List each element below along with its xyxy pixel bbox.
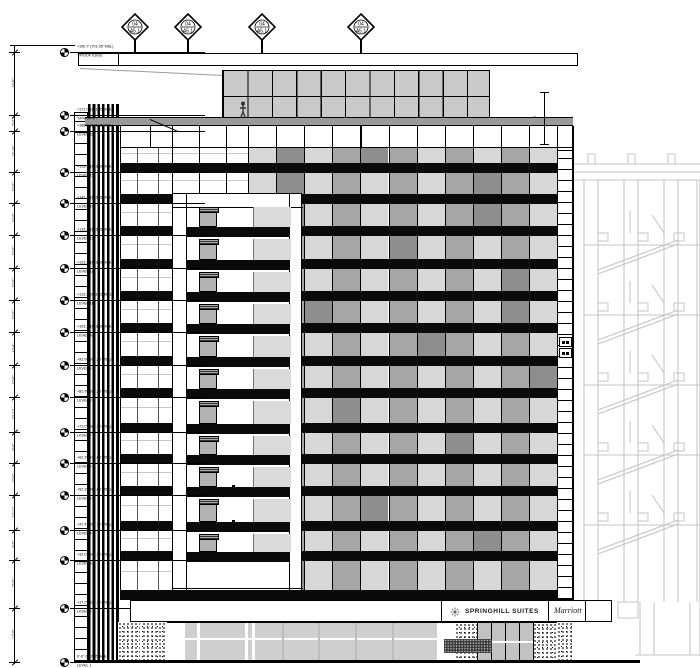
level-datum-icon [59, 555, 70, 566]
level-datum-icon [59, 603, 70, 614]
masonry-block [533, 623, 557, 663]
level-elevation-label: +72.0' (582.35' MSL) [77, 425, 111, 429]
level-name-label: T/ROOF EDGE [77, 54, 103, 58]
level-leader-line [70, 115, 205, 116]
svg-text:A5.1: A5.1 [257, 29, 268, 35]
vent-louver [559, 348, 572, 358]
level-name-label: T/PARAPET [77, 117, 97, 121]
level-elevation-label: +62.3' (572.65' MSL) [77, 456, 111, 460]
level-datum-icon [59, 525, 70, 536]
level-name-label: LEVEL 10 [77, 334, 94, 338]
dimension-segment-label: 10'-0" [12, 371, 15, 388]
level-name-label: LEVEL 12 [77, 270, 94, 274]
roof-keynote-marker: 04A5.1 [121, 13, 149, 41]
level-name-label: LEVEL 16 [77, 133, 94, 137]
masonry-corner [557, 622, 573, 660]
parapet-dim-line [544, 92, 545, 145]
sign-divider [441, 601, 442, 621]
parapet-dim-label: 9' [534, 116, 537, 119]
storefront-glass [185, 622, 437, 662]
svg-text:A5.1: A5.1 [130, 29, 141, 35]
level-leader-line [70, 268, 205, 269]
level-leader-line [70, 463, 205, 464]
level-name-label: LEVEL 11 [77, 302, 93, 306]
level-elevation-label: +32.0' (542.35' MSL) [77, 553, 111, 557]
annotation-layer: +190.7' (701.05' MSL)T/ROOF EDGE+171.0' … [0, 0, 700, 668]
vent-damper [566, 341, 569, 344]
roof-keynote-marker: 04A5.1 [347, 13, 375, 41]
masonry-joint [140, 622, 142, 662]
svg-text:A5.1: A5.1 [356, 29, 367, 35]
level-datum-icon [59, 198, 70, 209]
dimension-segment-label: 9'-5" [12, 535, 15, 552]
level-elevation-label: +153.2' (663.55' MSL) [77, 165, 113, 169]
level-name-label: LEVEL 8 [77, 399, 92, 403]
storefront-mullion [197, 623, 200, 663]
svg-text:04: 04 [185, 22, 191, 28]
level-datum-icon [59, 230, 70, 241]
storefront [74, 622, 573, 662]
svg-text:04: 04 [259, 22, 265, 28]
storefront-mullion [282, 623, 284, 663]
sign-hotel-name: SPRINGHILL SUITES [465, 608, 539, 615]
level-datum-icon [59, 490, 70, 501]
dimension-segment-label: 10'-11" [12, 503, 15, 520]
dimension-segment-label: 10'-0" [12, 209, 15, 226]
level-datum-icon [59, 263, 70, 274]
dimension-segment-label: 9'-8" [12, 438, 15, 455]
white-pier [167, 622, 185, 663]
masonry-pier [118, 622, 167, 662]
svg-text:A5.1: A5.1 [183, 29, 194, 35]
level-name-label: LEVEL 4 [77, 532, 92, 536]
level-elevation-label: +92.9' (603.25' MSL) [77, 358, 111, 362]
level-datum-icon [59, 657, 70, 668]
storefront-mullion [355, 623, 357, 663]
level-datum-icon [59, 327, 70, 338]
sign-divider [548, 601, 549, 621]
level-elevation-label: +52.3' (562.65' MSL) [77, 488, 111, 492]
level-leader-line [70, 131, 205, 132]
level-name-label: LEVEL 5 [77, 497, 92, 501]
svg-text:04: 04 [132, 22, 138, 28]
dimension-segment-label: 10'-4" [12, 339, 15, 356]
ground-line [74, 660, 640, 663]
level-datum-icon [59, 167, 70, 178]
level-datum-icon [59, 47, 70, 58]
sign-divider [585, 601, 586, 621]
level-name-label: LEVEL 15 [77, 174, 94, 178]
level-leader-line [70, 397, 205, 398]
level-datum-icon [59, 392, 70, 403]
level-leader-line [70, 365, 205, 366]
level-elevation-label: +41.4' (551.75' MSL) [77, 523, 111, 527]
dimension-segment-label: 10'-0" [12, 469, 15, 486]
dimension-segment-label: 17'-0" [12, 625, 15, 642]
level-elevation-label: +166.0' (676.35' MSL) [77, 124, 113, 128]
storefront-mullion [252, 623, 255, 663]
level-leader-line [70, 530, 205, 531]
level-name-label: LEVEL 3 [77, 562, 92, 566]
entrance-planting [444, 639, 492, 653]
level-elevation-label: +17.0' (527.35' MSL) [77, 601, 111, 605]
level-elevation-label: +190.7' (701.05' MSL) [77, 45, 113, 49]
level-datum-icon [59, 427, 70, 438]
dimension-segment-label: 19'-8" [12, 74, 15, 91]
level-leader-line [70, 495, 205, 496]
level-name-label: LEVEL 2 [77, 610, 92, 614]
level-leader-line [70, 52, 205, 53]
transom-bar [185, 638, 437, 640]
vent-damper [566, 352, 569, 355]
level-name-label: LEVEL 1 [77, 664, 92, 668]
level-name-label: LEVEL 9 [77, 367, 92, 371]
dimension-segment-label: 15'-0" [12, 574, 15, 591]
door-mullion [533, 623, 534, 663]
level-leader-line [70, 432, 205, 433]
dimension-tick [540, 144, 549, 145]
parapet-leader [150, 119, 178, 132]
level-datum-icon [59, 110, 70, 121]
level-elevation-label: +82.9' (593.25' MSL) [77, 390, 111, 394]
svg-text:04: 04 [358, 22, 364, 28]
storefront-mullion [392, 623, 394, 663]
level-elevation-label: +171.0' (681.35' MSL) [77, 108, 113, 112]
vent-damper [562, 341, 565, 344]
signage-band: SPRINGHILL SUITES Marriott [130, 600, 612, 622]
vent-damper [562, 352, 565, 355]
level-elevation-label: +113.2' (623.55' MSL) [77, 293, 113, 297]
masonry-joint [118, 637, 167, 639]
level-name-label: LEVEL 7 [77, 434, 92, 438]
dimension-segment-label: 10'-0" [12, 274, 15, 291]
sign-brand-name: Marriott [554, 606, 582, 615]
roof-keynote-marker: 04A5.1 [248, 13, 276, 41]
level-elevation-label: +133.2' (643.55' MSL) [77, 228, 113, 232]
level-elevation-label: +123.2' (633.55' MSL) [77, 261, 113, 265]
storefront-mullion [318, 623, 320, 663]
level-name-label: LEVEL 13 [77, 237, 94, 241]
dimension-segment-label: 10'-11" [12, 405, 15, 422]
level-elevation-label: +143.2' (653.55' MSL) [77, 196, 113, 200]
vent-louver [559, 337, 572, 347]
storefront-mullion [245, 623, 248, 663]
elevation-drawing-canvas: +190.7' (701.05' MSL)T/ROOF EDGE+171.0' … [0, 0, 700, 668]
dimension-segment-label: 10'-0" [12, 242, 15, 259]
level-leader-line [70, 300, 205, 301]
level-leader-line [70, 332, 205, 333]
level-name-label: LEVEL 6 [77, 465, 92, 469]
level-datum-icon [59, 295, 70, 306]
roof-keynote-marker: 04A5.1 [174, 13, 202, 41]
level-leader-line [70, 560, 205, 561]
dimension-tick [540, 92, 549, 93]
door-mullion [505, 623, 506, 663]
level-datum-icon [59, 360, 70, 371]
dimension-segment-label: 10'-0" [12, 306, 15, 323]
level-leader-line [70, 235, 205, 236]
level-leader-line [70, 203, 205, 204]
dimension-segment-label: 12'-10" [12, 142, 15, 159]
dimension-segment-label: 10'-0" [12, 178, 15, 195]
level-name-label: LEVEL 14 [77, 205, 94, 209]
springhill-sun-icon [450, 607, 460, 617]
level-elevation-label: +103.2' (613.55' MSL) [77, 325, 113, 329]
level-datum-icon [59, 126, 70, 137]
level-datum-icon [59, 458, 70, 469]
level-leader-line [70, 172, 205, 173]
door-mullion [519, 623, 520, 663]
dimension-segment-label: 5'-0" [12, 113, 15, 130]
